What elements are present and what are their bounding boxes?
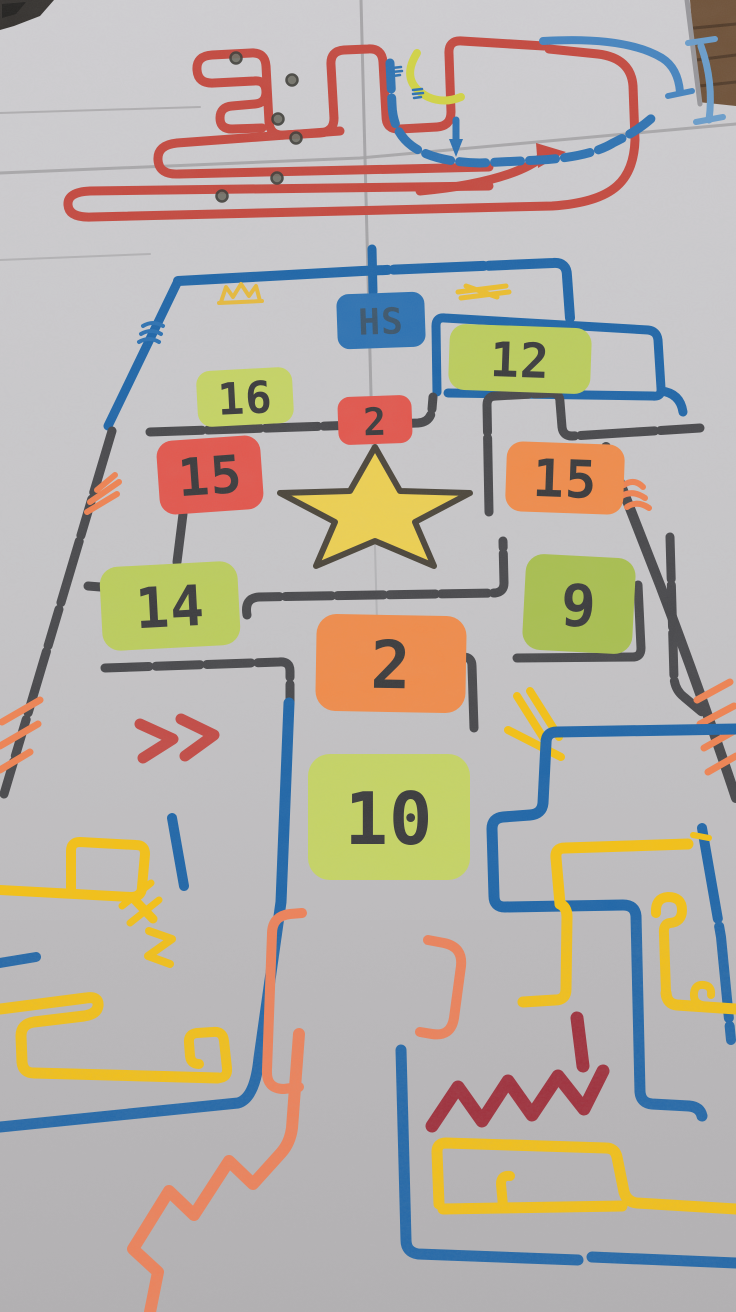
painted-sidewalk-game-photo: HS121621515149210 — [0, 0, 736, 1312]
scene-svg: HS121621515149210 — [0, 0, 736, 1312]
concrete-texture-rough-bottom — [0, 920, 736, 1312]
